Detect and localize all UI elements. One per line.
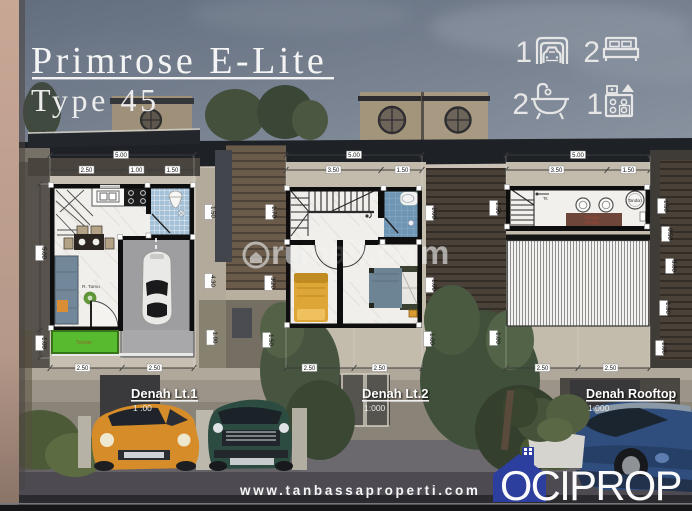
svg-text:2.50: 2.50 [374, 366, 386, 372]
svg-text:1.50: 1.50 [267, 334, 273, 346]
svg-text:2.50: 2.50 [77, 366, 89, 372]
svg-text:5.00: 5.00 [40, 247, 46, 259]
svg-text:3.50: 3.50 [328, 168, 340, 174]
svg-text:1.00: 1.00 [211, 332, 217, 344]
svg-text:1:000: 1:000 [364, 403, 386, 413]
svg-text:Taman: Taman [76, 340, 92, 346]
svg-text:1.50: 1.50 [662, 200, 668, 212]
svg-text:5.00: 5.00 [572, 153, 584, 159]
svg-text:Denah Lt.2: Denah Lt.2 [362, 386, 428, 401]
svg-text:Rooftop: Rooftop [585, 220, 600, 225]
svg-text:5.00: 5.00 [115, 153, 127, 159]
svg-text:2.50: 2.50 [149, 366, 161, 372]
svg-text:1.00: 1.00 [430, 207, 436, 219]
svg-text:3.20: 3.20 [269, 277, 275, 289]
svg-text:1.00: 1.00 [430, 279, 436, 291]
svg-text:1.70: 1.70 [270, 206, 276, 218]
svg-text:OCIPROP: OCIPROP [500, 462, 681, 509]
svg-text:Denah Rooftop: Denah Rooftop [586, 387, 677, 401]
svg-text:Denah Lt.1: Denah Lt.1 [131, 386, 197, 401]
svg-text:5.00: 5.00 [348, 153, 360, 159]
svg-text:1.50: 1.50 [167, 168, 179, 174]
svg-text:1.00: 1.00 [131, 168, 143, 174]
svg-text:3.50: 3.50 [551, 168, 563, 174]
svg-text:2.50: 2.50 [304, 366, 316, 372]
svg-text:1.00: 1.00 [494, 332, 500, 344]
svg-text:1.50: 1.50 [623, 168, 635, 174]
svg-text:1: 1 [515, 36, 532, 69]
svg-text:1.00: 1.00 [660, 342, 666, 354]
svg-text:2.50: 2.50 [605, 366, 617, 372]
svg-text:1.50: 1.50 [664, 302, 670, 314]
svg-text:2: 2 [583, 36, 600, 69]
svg-text:1.50: 1.50 [494, 202, 500, 214]
svg-text:4.30: 4.30 [209, 275, 215, 287]
svg-text:1.00: 1.00 [40, 337, 46, 349]
svg-text:1.50: 1.50 [209, 206, 215, 218]
svg-text:2: 2 [512, 88, 529, 121]
svg-text:Ts: Ts [543, 196, 548, 201]
svg-text:www.tanbassaproperti.com: www.tanbassaproperti.com [239, 483, 481, 498]
svg-text:R. Tamu: R. Tamu [82, 284, 100, 290]
svg-text:2.50: 2.50 [81, 168, 93, 174]
svg-text:3.00: 3.00 [670, 260, 676, 272]
svg-text:mah.co: mah.co [300, 234, 416, 271]
svg-text:Type 45: Type 45 [31, 82, 160, 118]
svg-text:2.50: 2.50 [537, 366, 549, 372]
svg-text:1.00: 1.00 [428, 333, 434, 345]
svg-text:1.50: 1.50 [397, 168, 409, 174]
svg-text:Primrose E-Lite: Primrose E-Lite [31, 40, 327, 82]
svg-text:1:000: 1:000 [588, 403, 610, 413]
svg-text:m: m [420, 234, 449, 271]
svg-text:0.50: 0.50 [666, 228, 672, 240]
svg-text:1 :00: 1 :00 [133, 403, 152, 413]
svg-text:1: 1 [586, 88, 603, 121]
svg-text:Tandon: Tandon [628, 198, 642, 203]
